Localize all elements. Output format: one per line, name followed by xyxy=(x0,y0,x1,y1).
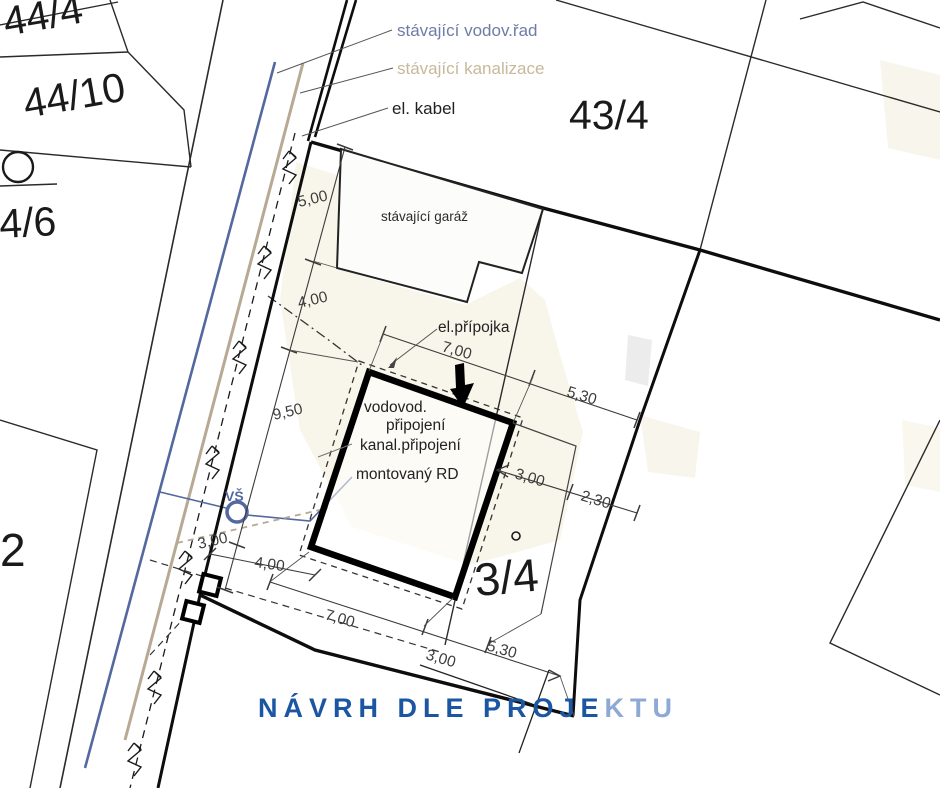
survey-circle-4-6 xyxy=(3,152,33,182)
water-main-line xyxy=(85,62,275,768)
plan-title-main: NÁVRH DLE PROJE xyxy=(258,692,605,723)
site-plan: stávající vodov.řad stávající kanalizace… xyxy=(0,0,940,788)
parcel-number-4-6: 4/6 xyxy=(0,198,57,247)
plot-boundary-east xyxy=(573,250,700,716)
street-west-edge xyxy=(60,0,223,788)
plan-title: NÁVRH DLE PROJEKTU xyxy=(258,692,678,723)
gate-post xyxy=(199,574,221,596)
label-el-cable: el. kabel xyxy=(392,99,455,118)
label-water-shaft: VŠ xyxy=(225,487,244,504)
el-cable-line xyxy=(130,133,295,788)
gray-patch xyxy=(625,335,652,386)
label-house: montovaný RD xyxy=(356,466,459,483)
label-water-service-2: připojení xyxy=(386,417,446,434)
dim-gate-3: 3,00 xyxy=(196,529,230,552)
parcel-number-3-4: 3/4 xyxy=(472,549,540,606)
cable-zigzag-icon xyxy=(148,671,161,704)
parcel-number-44-4: 44/4 xyxy=(0,0,86,45)
parcel-number-43-4: 43/4 xyxy=(569,92,649,138)
parcel-number-2: 2 xyxy=(0,524,26,576)
dim-south-5-30: 5,30 xyxy=(485,638,519,663)
site-plan-svg: stávající vodov.řad stávající kanalizace… xyxy=(0,0,940,788)
label-water-service-1: vodovod. xyxy=(364,399,427,416)
label-sewer-service: kanal.připojení xyxy=(360,437,462,454)
plot-boundary-west xyxy=(158,142,311,788)
label-sewer-main: stávající kanalizace xyxy=(397,59,544,78)
cable-zigzag-icon xyxy=(128,743,141,776)
label-garage: stávající garáž xyxy=(381,209,468,224)
label-el-service: el.přípojka xyxy=(438,319,510,336)
parcel-number-44-10: 44/10 xyxy=(20,64,129,127)
plan-title-accent: KTU xyxy=(605,693,679,723)
gate-post xyxy=(182,601,204,623)
beige-patch-east xyxy=(640,415,700,478)
dim-east-2-30: 2,30 xyxy=(579,488,613,513)
street-boundary-double-line xyxy=(308,0,356,141)
label-water-main: stávající vodov.řad xyxy=(397,21,537,40)
dim-south-7: 7,00 xyxy=(323,607,357,632)
dim-drive-4: 4,00 xyxy=(253,554,286,575)
